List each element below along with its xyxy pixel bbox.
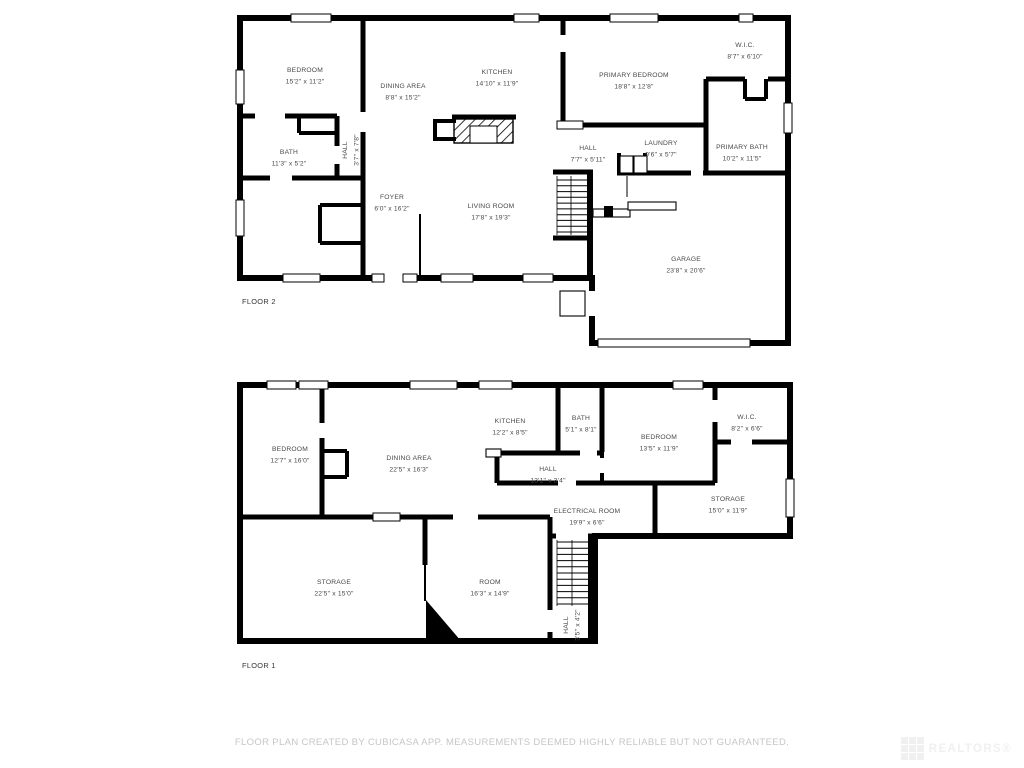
- room-name: BEDROOM: [272, 446, 308, 453]
- room-label: LIVING ROOM17'8" x 19'3": [468, 203, 515, 222]
- room-name: HALL: [563, 616, 570, 634]
- room-dims: 8'7" x 6'10": [727, 54, 763, 61]
- room-label: LAUNDRY9'6" x 5'7": [644, 140, 678, 159]
- room-dims: 3'7" x 7'8": [354, 134, 361, 166]
- room-label: DINING AREA22'5" x 16'3": [386, 455, 432, 474]
- floor1-room-labels: BEDROOM12'7" x 16'0"DINING AREA22'5" x 1…: [270, 414, 763, 641]
- window: [784, 103, 792, 133]
- room-name: ROOM: [479, 579, 501, 586]
- room-dims: 13'5" x 11'9": [640, 446, 679, 453]
- room-name: FOYER: [380, 194, 404, 201]
- window: [739, 14, 753, 22]
- room-label: HALL3'5" x 4'2": [563, 609, 582, 641]
- room-name: KITCHEN: [482, 69, 513, 76]
- floorplan-canvas: BEDROOM15'2" x 11'2"DINING AREA8'8" x 15…: [0, 0, 1024, 768]
- window: [267, 381, 296, 389]
- washer-icon: [620, 156, 633, 173]
- room-dims: 19'9" x 6'6": [569, 520, 605, 527]
- room-name: BATH: [572, 415, 590, 422]
- room-label: PRIMARY BATH10'2" x 11'5": [716, 144, 768, 163]
- stair-treads: [557, 542, 588, 604]
- room-name: BATH: [280, 149, 298, 156]
- floor1-plan: BEDROOM12'7" x 16'0"DINING AREA22'5" x 1…: [240, 381, 794, 670]
- room-label: GARAGE23'8" x 20'6": [666, 256, 706, 275]
- window: [236, 200, 244, 236]
- room-label: HALL3'7" x 7'8": [342, 134, 361, 166]
- room-name: GARAGE: [671, 256, 701, 263]
- brand-logo-icon: [901, 737, 924, 760]
- room-dims: 3'5" x 4'2": [575, 609, 582, 641]
- room-label: W.I.C.8'2" x 6'6": [731, 414, 763, 433]
- firebox: [470, 126, 497, 143]
- room-name: STORAGE: [317, 579, 351, 586]
- kitchen-counter: [486, 449, 501, 457]
- room-name: W.I.C.: [735, 42, 754, 49]
- room-dims: 15'0" x 11'9": [709, 508, 748, 515]
- interior-window: [557, 121, 583, 129]
- room-dims: 18'8" x 12'8": [614, 84, 654, 91]
- room-dims: 14'10" x 11'9": [476, 81, 519, 88]
- room-name: ELECTRICAL ROOM: [554, 508, 621, 515]
- room-name: LIVING ROOM: [468, 203, 515, 210]
- brand-watermark-text: REALTORS®: [929, 743, 1012, 755]
- room-name: W.I.C.: [737, 414, 756, 421]
- window: [523, 274, 553, 282]
- room-name: PRIMARY BEDROOM: [599, 72, 669, 79]
- railing-segment: [628, 202, 676, 210]
- room-dims: 13'1" x 3'4": [530, 478, 566, 485]
- floor2-title: FLOOR 2: [242, 297, 276, 306]
- staircase-floor2: [557, 176, 587, 235]
- room-name: KITCHEN: [495, 418, 526, 425]
- floor2-interior-walls: [240, 18, 788, 277]
- garage-side-door-opening: [585, 291, 596, 316]
- room-label: STORAGE15'0" x 11'9": [709, 496, 748, 515]
- interior-window: [373, 513, 400, 521]
- sliding-door: [410, 381, 457, 389]
- room-name: PRIMARY BATH: [716, 144, 768, 151]
- room-label: BEDROOM15'2" x 11'2": [286, 67, 325, 86]
- railing-post: [604, 206, 613, 217]
- brand-watermark: REALTORS®: [901, 737, 1012, 760]
- room-dims: 7'7" x 5'11": [571, 157, 606, 164]
- floor1-title: FLOOR 1: [242, 661, 276, 670]
- room-dims: 17'8" x 19'3": [471, 215, 511, 222]
- room-name: HALL: [342, 141, 349, 159]
- window: [372, 274, 384, 282]
- room-dims: 12'2" x 8'5": [492, 430, 528, 437]
- window: [283, 274, 320, 282]
- room-dims: 22'5" x 15'0": [314, 591, 354, 598]
- window: [236, 70, 244, 104]
- railing: [593, 202, 676, 217]
- angled-wall: [426, 600, 461, 641]
- room-dims: 5'1" x 8'1": [565, 427, 597, 434]
- room-label: HALL13'1" x 3'4": [530, 466, 566, 485]
- room-name: DINING AREA: [380, 83, 426, 90]
- floorplan-page: { "colors": { "wall": "#000000", "label"…: [0, 0, 1024, 768]
- room-label: W.I.C.8'7" x 6'10": [727, 42, 763, 61]
- front-door-opening: [384, 272, 403, 283]
- window: [441, 274, 473, 282]
- room-label: BEDROOM12'7" x 16'0": [270, 446, 310, 465]
- room-label: PRIMARY BEDROOM18'8" x 12'8": [599, 72, 669, 91]
- room-name: BEDROOM: [641, 434, 677, 441]
- window: [673, 381, 703, 389]
- room-name: BEDROOM: [287, 67, 323, 74]
- room-dims: 11'3" x 5'2": [272, 161, 307, 168]
- room-label: HALL7'7" x 5'11": [571, 145, 606, 164]
- entry-stoop: [560, 291, 585, 316]
- room-dims: 8'2" x 6'6": [731, 426, 763, 433]
- window: [514, 14, 539, 22]
- window: [299, 381, 328, 389]
- room-dims: 16'3" x 14'9": [470, 591, 510, 598]
- stair-treads: [557, 180, 587, 232]
- room-name: DINING AREA: [386, 455, 432, 462]
- room-dims: 9'6" x 5'7": [645, 152, 677, 159]
- room-label: BATH11'3" x 5'2": [272, 149, 307, 168]
- garage-door: [598, 339, 750, 347]
- room-dims: 12'7" x 16'0": [270, 458, 310, 465]
- window: [291, 14, 331, 22]
- room-dims: 10'2" x 11'5": [723, 156, 762, 163]
- room-label: KITCHEN14'10" x 11'9": [476, 69, 519, 88]
- room-label: DINING AREA8'8" x 15'2": [380, 83, 426, 102]
- room-name: HALL: [579, 145, 597, 152]
- window: [479, 381, 512, 389]
- window: [610, 14, 658, 22]
- room-dims: 6'0" x 16'2": [374, 206, 410, 213]
- floor2-room-labels: BEDROOM15'2" x 11'2"DINING AREA8'8" x 15…: [272, 42, 768, 275]
- room-label: KITCHEN12'2" x 8'5": [492, 418, 528, 437]
- disclaimer-text: FLOOR PLAN CREATED BY CUBICASA APP. MEAS…: [0, 737, 1024, 748]
- room-dims: 23'8" x 20'6": [666, 268, 706, 275]
- room-label: ROOM16'3" x 14'9": [470, 579, 510, 598]
- dryer-icon: [634, 156, 647, 173]
- window: [786, 479, 794, 517]
- room-label: BEDROOM13'5" x 11'9": [640, 434, 679, 453]
- room-dims: 15'2" x 11'2": [286, 79, 325, 86]
- floor2-closet-walls: [299, 79, 766, 243]
- floor2-plan: BEDROOM15'2" x 11'2"DINING AREA8'8" x 15…: [236, 14, 792, 347]
- window: [403, 274, 417, 282]
- staircase-floor1: [557, 540, 588, 606]
- room-dims: 22'5" x 16'3": [389, 467, 429, 474]
- room-name: LAUNDRY: [644, 140, 678, 147]
- room-name: STORAGE: [711, 496, 745, 503]
- fireplace-surround: [435, 121, 456, 139]
- room-label: ELECTRICAL ROOM19'9" x 6'6": [554, 508, 621, 527]
- room-label: STORAGE22'5" x 15'0": [314, 579, 354, 598]
- fireplace-icon: [435, 119, 513, 143]
- room-name: HALL: [539, 466, 557, 473]
- room-dims: 8'8" x 15'2": [385, 95, 421, 102]
- room-label: BATH5'1" x 8'1": [565, 415, 597, 434]
- room-label: FOYER6'0" x 16'2": [374, 194, 410, 213]
